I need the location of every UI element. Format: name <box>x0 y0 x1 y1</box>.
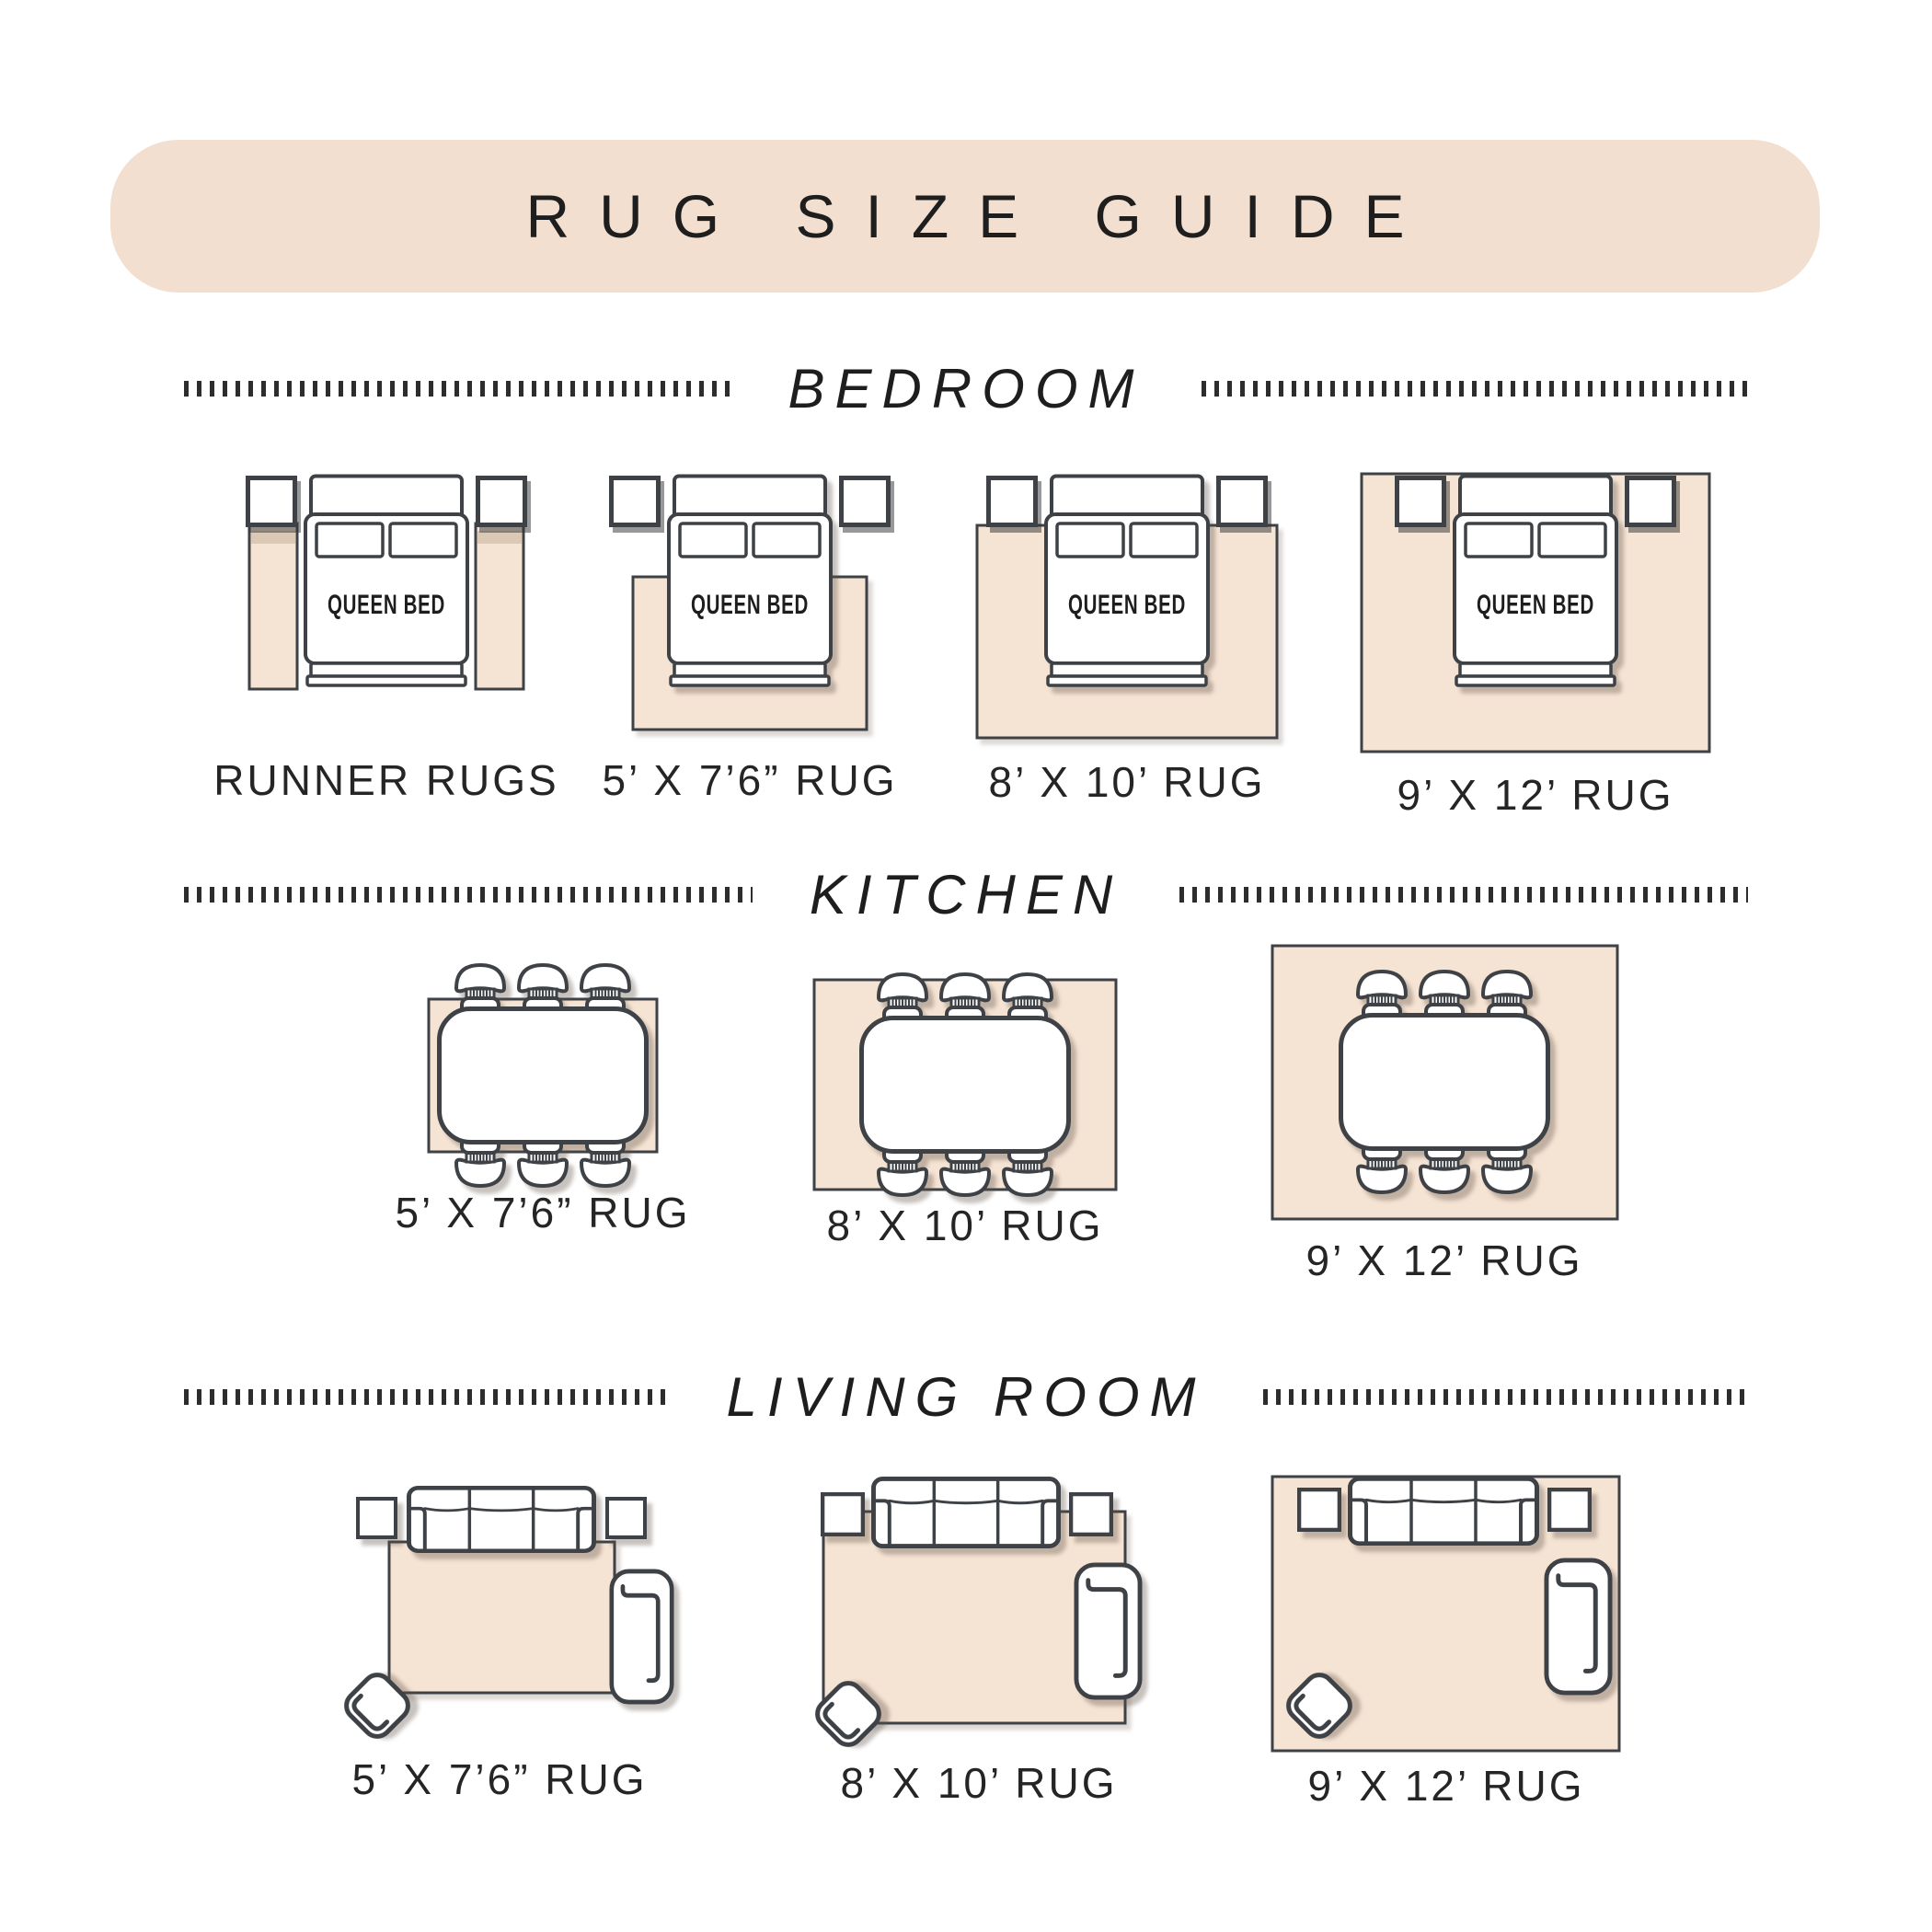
diagram-living-9x12 <box>1216 1463 1676 1771</box>
nightstand <box>1627 478 1674 525</box>
side-table <box>1299 1489 1340 1530</box>
section-header-living-room: LIVING ROOM <box>184 1367 1748 1426</box>
nightstand <box>478 478 525 525</box>
queen-bed <box>305 477 467 686</box>
dotted-line <box>184 1389 669 1405</box>
nightstand <box>1397 478 1444 525</box>
nightstand <box>1219 478 1266 525</box>
dining-table <box>862 1018 1069 1152</box>
sofa <box>1351 1478 1537 1543</box>
queen-bed <box>1455 477 1616 686</box>
section-header-kitchen: KITCHEN <box>184 865 1748 924</box>
rug-size-guide-infographic: QUEEN BED <box>0 0 1932 1932</box>
queen-bed <box>1046 477 1208 686</box>
dotted-line <box>1263 1389 1748 1405</box>
dining-table <box>440 1009 647 1143</box>
side-table <box>1071 1494 1111 1535</box>
nightstand <box>612 478 659 525</box>
sofa <box>408 1488 593 1550</box>
section-title-kitchen: KITCHEN <box>810 863 1122 926</box>
section-title-bedroom: BEDROOM <box>788 357 1144 420</box>
rug-label: 5’ X 7’6” RUG <box>351 1754 647 1804</box>
armchair <box>1076 1565 1140 1697</box>
header-banner: RUG SIZE GUIDE <box>110 140 1820 293</box>
page-title: RUG SIZE GUIDE <box>496 181 1433 251</box>
rug-label: 9’ X 12’ RUG <box>1397 770 1673 820</box>
diagram-bedroom-8x10 <box>929 465 1325 773</box>
sofa <box>873 1478 1058 1546</box>
dotted-line <box>1179 887 1748 903</box>
diagram-bedroom-runner <box>189 465 584 773</box>
side-table <box>607 1499 645 1537</box>
side-table <box>822 1494 863 1535</box>
queen-bed <box>669 477 831 686</box>
side-table <box>358 1499 396 1537</box>
side-table <box>1549 1489 1590 1530</box>
rug-label: 8’ X 10’ RUG <box>840 1758 1117 1808</box>
rug-label: 9’ X 12’ RUG <box>1305 1236 1582 1285</box>
armchair <box>1547 1560 1610 1693</box>
diagram-living-8x10 <box>749 1463 1209 1771</box>
rug-label: 8’ X 10’ RUG <box>826 1201 1103 1250</box>
rug-label: RUNNER RUGS <box>213 755 558 805</box>
dining-table <box>1341 1016 1548 1149</box>
diagram-living-5x76 <box>270 1463 730 1771</box>
nightstand <box>842 478 889 525</box>
diagram-bedroom-5x76 <box>552 465 948 773</box>
nightstand <box>989 478 1036 525</box>
armchair <box>612 1571 672 1702</box>
section-title-living-room: LIVING ROOM <box>726 1365 1205 1429</box>
dotted-line <box>184 381 730 397</box>
rug-shape <box>389 1542 615 1693</box>
section-header-bedroom: BEDROOM <box>184 359 1748 418</box>
dotted-line <box>1202 381 1748 397</box>
diagram-bedroom-9x12 <box>1338 465 1733 773</box>
rug-label: 5’ X 7’6” RUG <box>602 755 897 805</box>
diagram-kitchen-9x12 <box>1224 926 1665 1243</box>
rug-label: 8’ X 10’ RUG <box>988 757 1265 807</box>
diagram-kitchen-8x10 <box>744 928 1186 1246</box>
dotted-line <box>184 887 753 903</box>
nightstand <box>248 478 295 525</box>
rug-label: 9’ X 12’ RUG <box>1307 1761 1584 1811</box>
rug-label: 5’ X 7’6” RUG <box>395 1188 690 1237</box>
